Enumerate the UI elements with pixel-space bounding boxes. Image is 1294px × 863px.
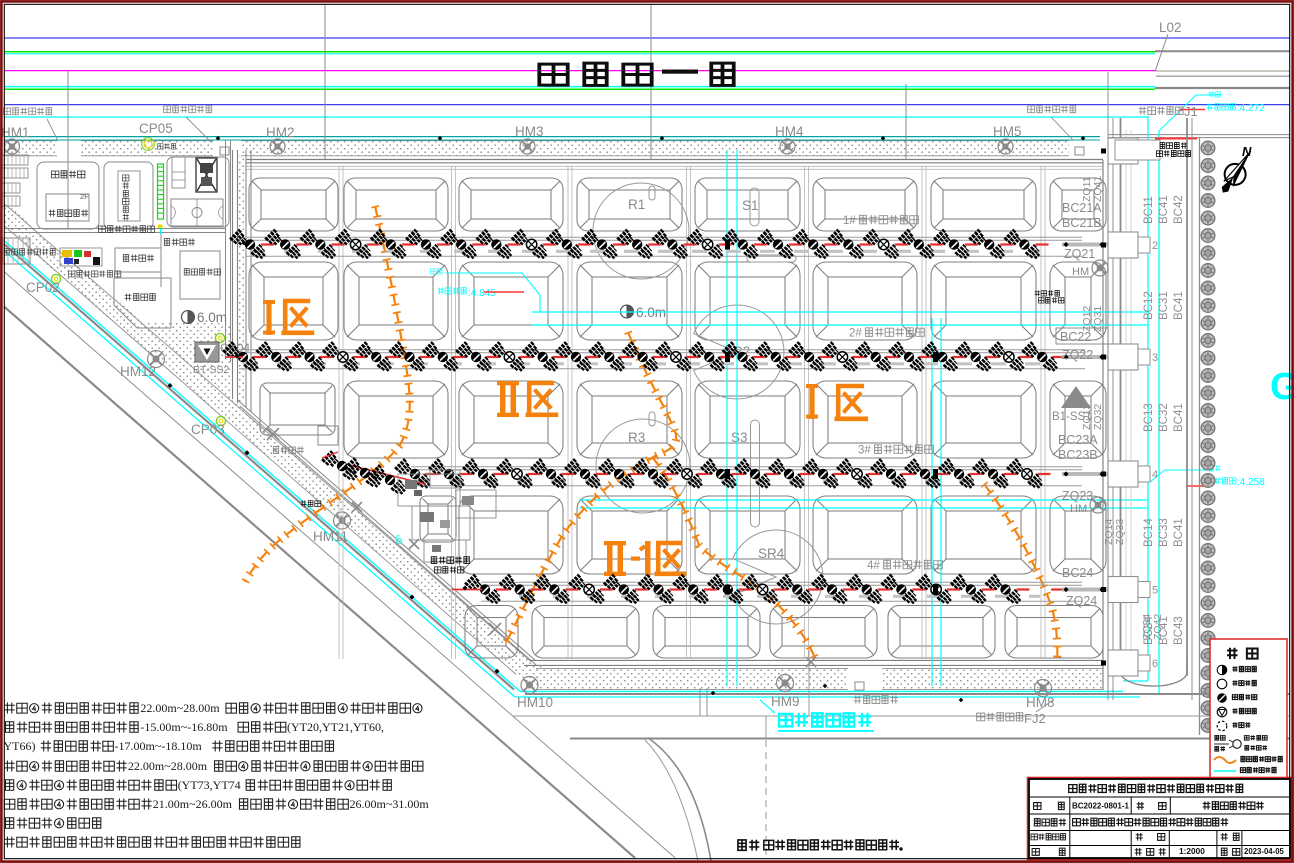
svg-text:26.00m~31.00m: 26.00m~31.00m: [350, 797, 430, 811]
svg-text:BC14: BC14: [1143, 518, 1155, 547]
svg-text:ZQ21: ZQ21: [1064, 247, 1095, 261]
svg-text:BC23B: BC23B: [1058, 448, 1098, 462]
svg-text:2023-04-05: 2023-04-05: [1244, 847, 1285, 856]
svg-text:BC23A: BC23A: [1058, 433, 1098, 447]
svg-text:BC43: BC43: [1173, 616, 1185, 645]
svg-text:BC41: BC41: [1158, 616, 1170, 645]
svg-text:FJ2: FJ2: [1024, 711, 1046, 726]
svg-text:ZQ31: ZQ31: [1092, 306, 1104, 332]
svg-text:BC11: BC11: [1143, 196, 1155, 224]
svg-text:2F: 2F: [80, 192, 89, 201]
svg-text:4#: 4#: [867, 560, 880, 572]
svg-text:HM2: HM2: [266, 125, 295, 140]
svg-text:(YT20,YT21,YT60,: (YT20,YT21,YT60,: [287, 720, 384, 734]
svg-text:R3: R3: [628, 430, 645, 445]
svg-text:ZQ32: ZQ32: [1092, 404, 1104, 430]
svg-text:BC42: BC42: [1173, 195, 1185, 224]
svg-text:J1: J1: [1184, 104, 1198, 119]
svg-text:ZQ41: ZQ41: [1092, 176, 1104, 202]
svg-text:22.00m~28.00m: 22.00m~28.00m: [140, 701, 220, 715]
svg-text:ZQ23: ZQ23: [1062, 489, 1093, 503]
svg-text:CP03: CP03: [191, 422, 225, 437]
svg-text:G: G: [1270, 366, 1294, 408]
svg-text:BC21B: BC21B: [1062, 216, 1102, 230]
svg-text:-15.00m~-16.80m: -15.00m~-16.80m: [140, 720, 228, 734]
svg-text:2: 2: [1152, 240, 1158, 252]
svg-text:BC32: BC32: [1158, 403, 1170, 432]
svg-text:4: 4: [1152, 469, 1158, 481]
svg-text:BT-SS2: BT-SS2: [193, 364, 229, 376]
svg-text:HM5: HM5: [993, 124, 1022, 139]
svg-text:CP05: CP05: [139, 121, 173, 136]
svg-text:-17.00m~-18.10m: -17.00m~-18.10m: [115, 739, 203, 753]
svg-text:ZQ24: ZQ24: [1066, 594, 1097, 608]
svg-text:CP02: CP02: [26, 280, 60, 295]
svg-text:21.00m~26.00m: 21.00m~26.00m: [153, 797, 233, 811]
svg-text:1:2000: 1:2000: [1179, 846, 1205, 856]
svg-text:HM1: HM1: [1, 125, 30, 140]
svg-text:ZQ33: ZQ33: [1114, 519, 1126, 545]
svg-text:BC21A: BC21A: [1062, 201, 1102, 215]
svg-text:ZQ22: ZQ22: [1062, 348, 1093, 362]
svg-text:3#: 3#: [858, 445, 871, 457]
svg-text:6.0m: 6.0m: [197, 310, 227, 325]
svg-text:HM4: HM4: [775, 124, 804, 139]
svg-text:6: 6: [1152, 658, 1158, 670]
svg-text:BC41: BC41: [1173, 291, 1185, 320]
svg-text:R1: R1: [628, 197, 645, 212]
svg-text:S3: S3: [731, 430, 748, 445]
svg-text:BC33: BC33: [1158, 518, 1170, 547]
svg-text:HM9: HM9: [771, 694, 800, 709]
svg-text:3: 3: [1152, 352, 1158, 364]
svg-text::4.845: :4.845: [468, 288, 496, 299]
svg-text:(YT73,YT74: (YT73,YT74: [178, 778, 241, 792]
svg-text:HM12: HM12: [120, 364, 156, 379]
svg-text:BC41: BC41: [1173, 518, 1185, 547]
svg-text:BC34: BC34: [1143, 616, 1155, 645]
svg-text::4.272: :4.272: [1237, 103, 1265, 114]
svg-text:1#: 1#: [843, 215, 856, 227]
svg-text:22.00m~28.00m: 22.00m~28.00m: [128, 759, 208, 773]
svg-text:YT66): YT66): [4, 739, 36, 753]
svg-text:SR4: SR4: [758, 546, 785, 561]
svg-text:L02: L02: [1159, 20, 1182, 35]
svg-text:BC13: BC13: [1143, 403, 1155, 432]
svg-text:BC12: BC12: [1143, 291, 1155, 320]
svg-text:2#: 2#: [849, 328, 862, 340]
svg-text:HM: HM: [1072, 266, 1089, 278]
svg-text:HM3: HM3: [515, 124, 544, 139]
svg-text:HM: HM: [1070, 503, 1087, 515]
svg-text:BC41: BC41: [1173, 403, 1185, 432]
svg-text:BC41: BC41: [1158, 195, 1170, 224]
svg-text:BC24: BC24: [1062, 566, 1093, 580]
svg-text:N: N: [1242, 144, 1252, 159]
svg-text::4.258: :4.258: [1237, 477, 1265, 488]
svg-text:HM10: HM10: [517, 695, 553, 710]
svg-text:5: 5: [1152, 585, 1158, 597]
svg-text:BC31: BC31: [1158, 291, 1170, 320]
svg-text:S1: S1: [742, 198, 759, 213]
svg-text:BC2022-0801-1: BC2022-0801-1: [1072, 802, 1129, 811]
